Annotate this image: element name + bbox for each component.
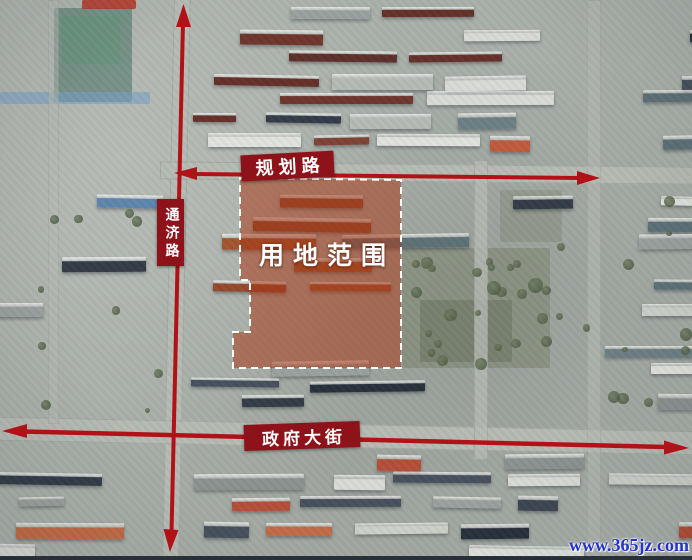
- watermark: www.365jz.com: [569, 535, 689, 556]
- zhengfu-street-label: 政府大街: [244, 421, 361, 451]
- arrowhead-right-icon: [664, 441, 689, 455]
- arrowhead-down-icon: [164, 529, 179, 552]
- bottom-border-strip: [0, 556, 692, 560]
- satellite-map: 规划路 通济路 政府大街 用地范围 www.365jz.com: [0, 0, 692, 560]
- arrowhead-left-icon: [2, 424, 27, 438]
- arrowhead-right-icon: [577, 171, 600, 185]
- tongji-road-label: 通济路: [157, 199, 184, 266]
- arrowhead-left-icon: [174, 167, 197, 180]
- arrowhead-up-icon: [176, 4, 191, 27]
- site-area-label: 用地范围: [259, 236, 395, 272]
- guihua-road-label: 规划路: [240, 151, 334, 182]
- annotation-overlay: [0, 0, 692, 560]
- site-boundary-polygon: [233, 178, 401, 368]
- tongji-road-arrow: [164, 4, 192, 552]
